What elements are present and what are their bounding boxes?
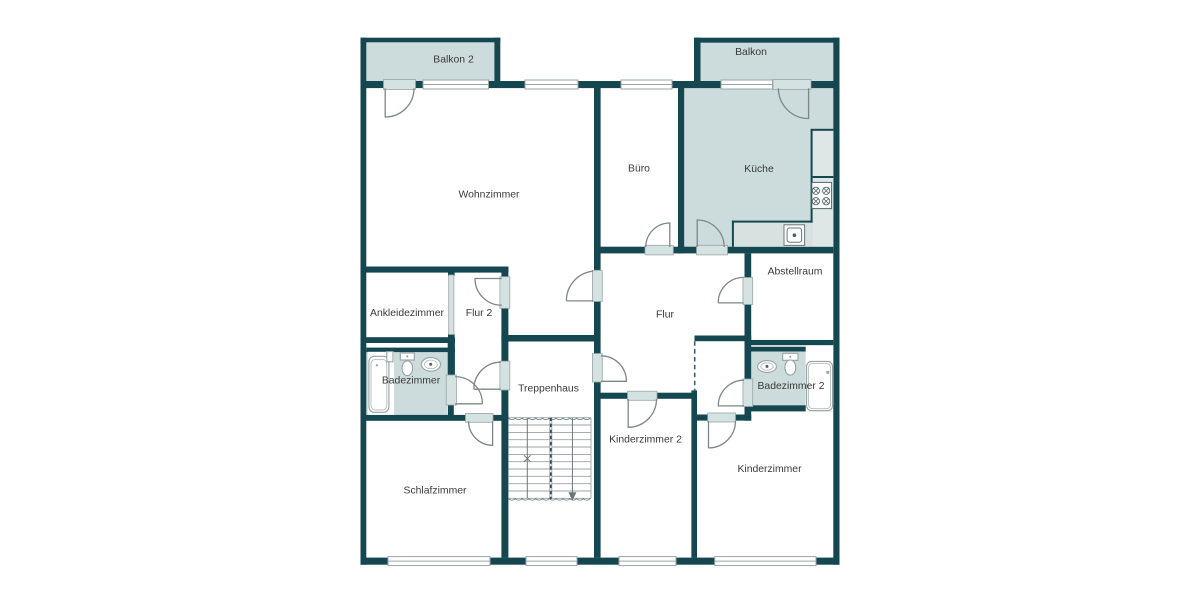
svg-text:Badezimmer 2: Badezimmer 2 bbox=[758, 381, 825, 392]
svg-text:Ankleidezimmer: Ankleidezimmer bbox=[370, 308, 444, 319]
svg-text:Abstellraum: Abstellraum bbox=[768, 267, 823, 278]
svg-text:Kinderzimmer: Kinderzimmer bbox=[737, 464, 802, 475]
svg-text:Wohnzimmer: Wohnzimmer bbox=[458, 190, 520, 201]
svg-text:Badezimmer: Badezimmer bbox=[382, 376, 441, 387]
svg-text:Flur 2: Flur 2 bbox=[466, 308, 493, 319]
svg-text:Kinderzimmer 2: Kinderzimmer 2 bbox=[609, 435, 682, 446]
svg-text:Flur: Flur bbox=[656, 310, 674, 321]
svg-text:Schlafzimmer: Schlafzimmer bbox=[404, 486, 467, 497]
svg-text:Büro: Büro bbox=[628, 164, 650, 175]
svg-text:Balkon 2: Balkon 2 bbox=[433, 55, 474, 66]
svg-text:Küche: Küche bbox=[744, 164, 774, 175]
svg-text:Balkon: Balkon bbox=[735, 47, 767, 58]
svg-text:Treppenhaus: Treppenhaus bbox=[518, 384, 579, 395]
